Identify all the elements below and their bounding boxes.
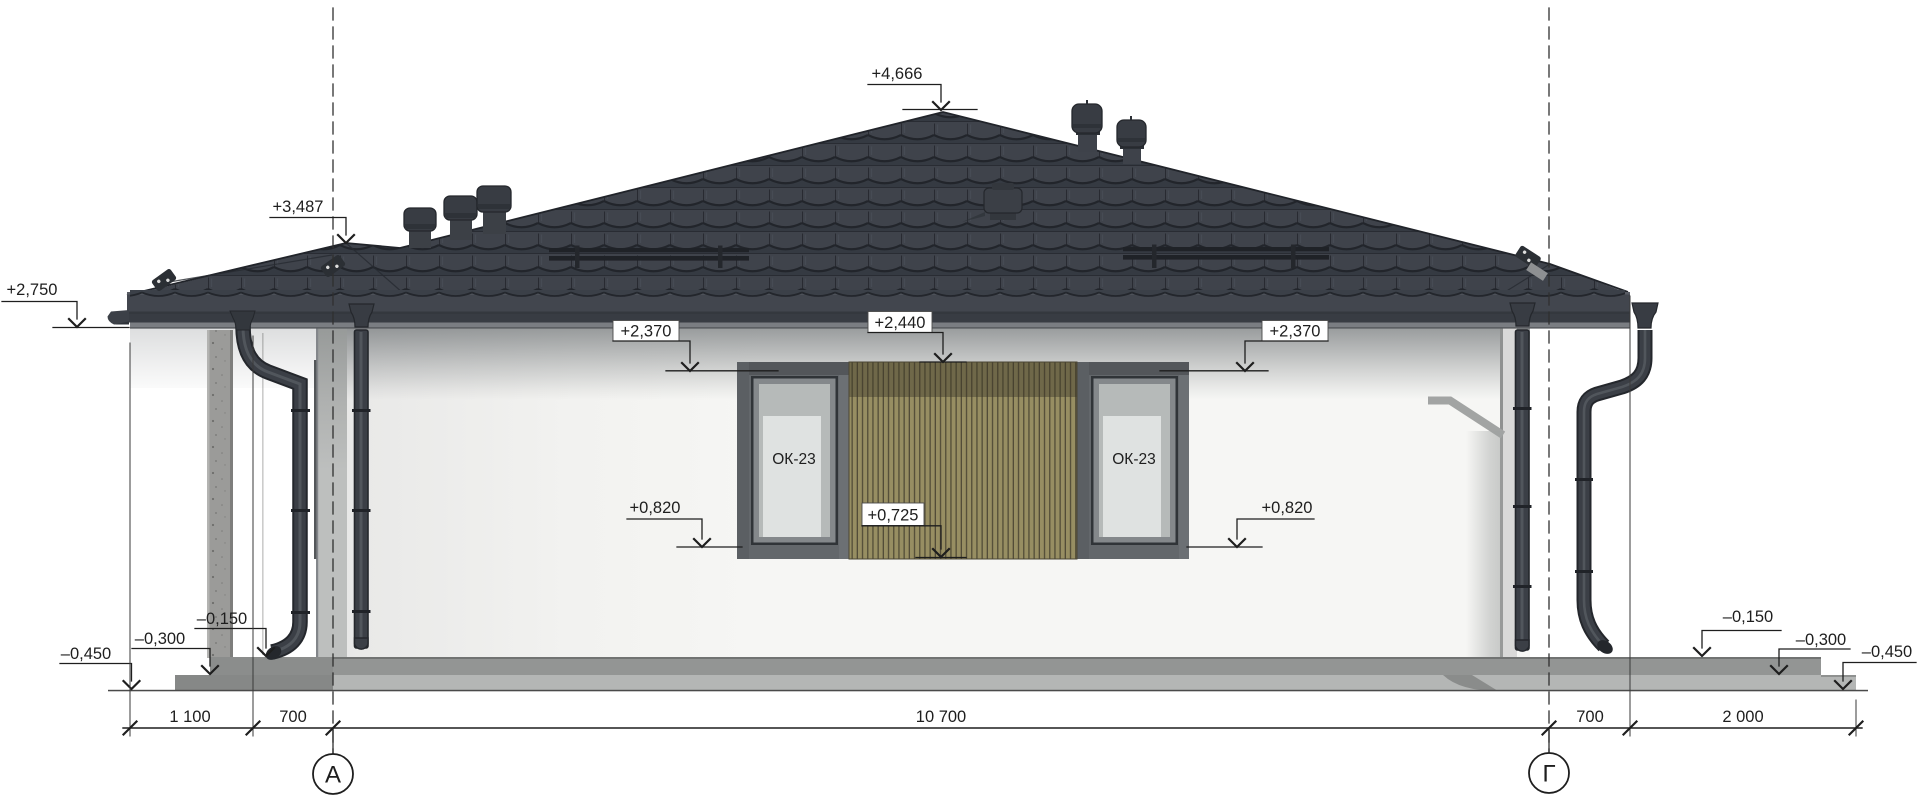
svg-text:1 100: 1 100 (169, 708, 210, 726)
svg-text:–0,150: –0,150 (1723, 608, 1773, 626)
svg-text:–0,450: –0,450 (1862, 643, 1912, 661)
svg-text:–0,300: –0,300 (135, 630, 185, 648)
svg-text:2 000: 2 000 (1722, 708, 1763, 726)
svg-text:+0,820: +0,820 (630, 499, 681, 517)
svg-text:+2,440: +2,440 (875, 314, 926, 332)
svg-text:–0,450: –0,450 (61, 645, 111, 663)
svg-text:700: 700 (279, 708, 307, 726)
svg-text:+4,666: +4,666 (872, 65, 923, 83)
svg-text:Г: Г (1543, 761, 1556, 788)
svg-text:+0,725: +0,725 (868, 507, 919, 525)
svg-text:700: 700 (1576, 708, 1604, 726)
svg-text:А: А (325, 762, 341, 789)
svg-text:+2,370: +2,370 (621, 323, 672, 341)
svg-text:ОК-23: ОК-23 (772, 451, 816, 468)
svg-text:–0,300: –0,300 (1796, 631, 1846, 649)
svg-text:+2,370: +2,370 (1270, 323, 1321, 341)
svg-text:+0,820: +0,820 (1262, 499, 1313, 517)
svg-text:+3,487: +3,487 (273, 198, 324, 216)
svg-text:–0,150: –0,150 (197, 610, 247, 628)
svg-text:ОК-23: ОК-23 (1112, 451, 1156, 468)
svg-text:+2,750: +2,750 (7, 281, 58, 299)
svg-text:10 700: 10 700 (916, 708, 966, 726)
